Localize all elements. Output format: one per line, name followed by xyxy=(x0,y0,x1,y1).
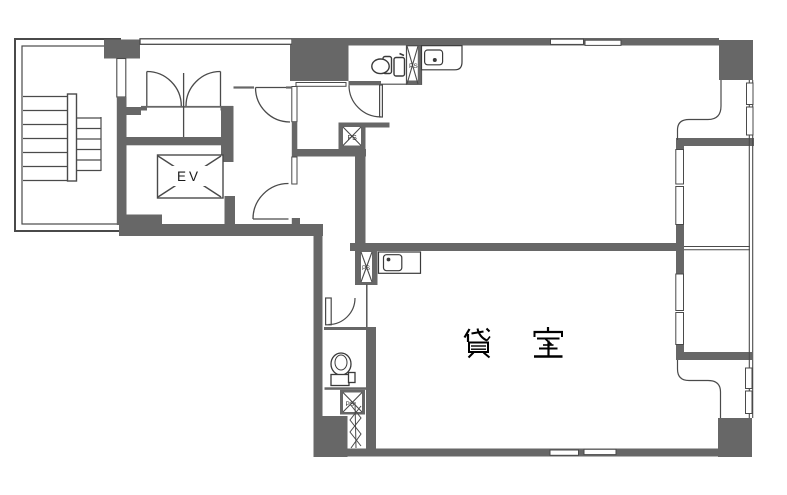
svg-text:PS: PS xyxy=(362,266,370,272)
svg-text:PS: PS xyxy=(348,135,358,142)
svg-text:PS: PS xyxy=(409,63,418,70)
svg-text:EV: EV xyxy=(177,169,201,184)
